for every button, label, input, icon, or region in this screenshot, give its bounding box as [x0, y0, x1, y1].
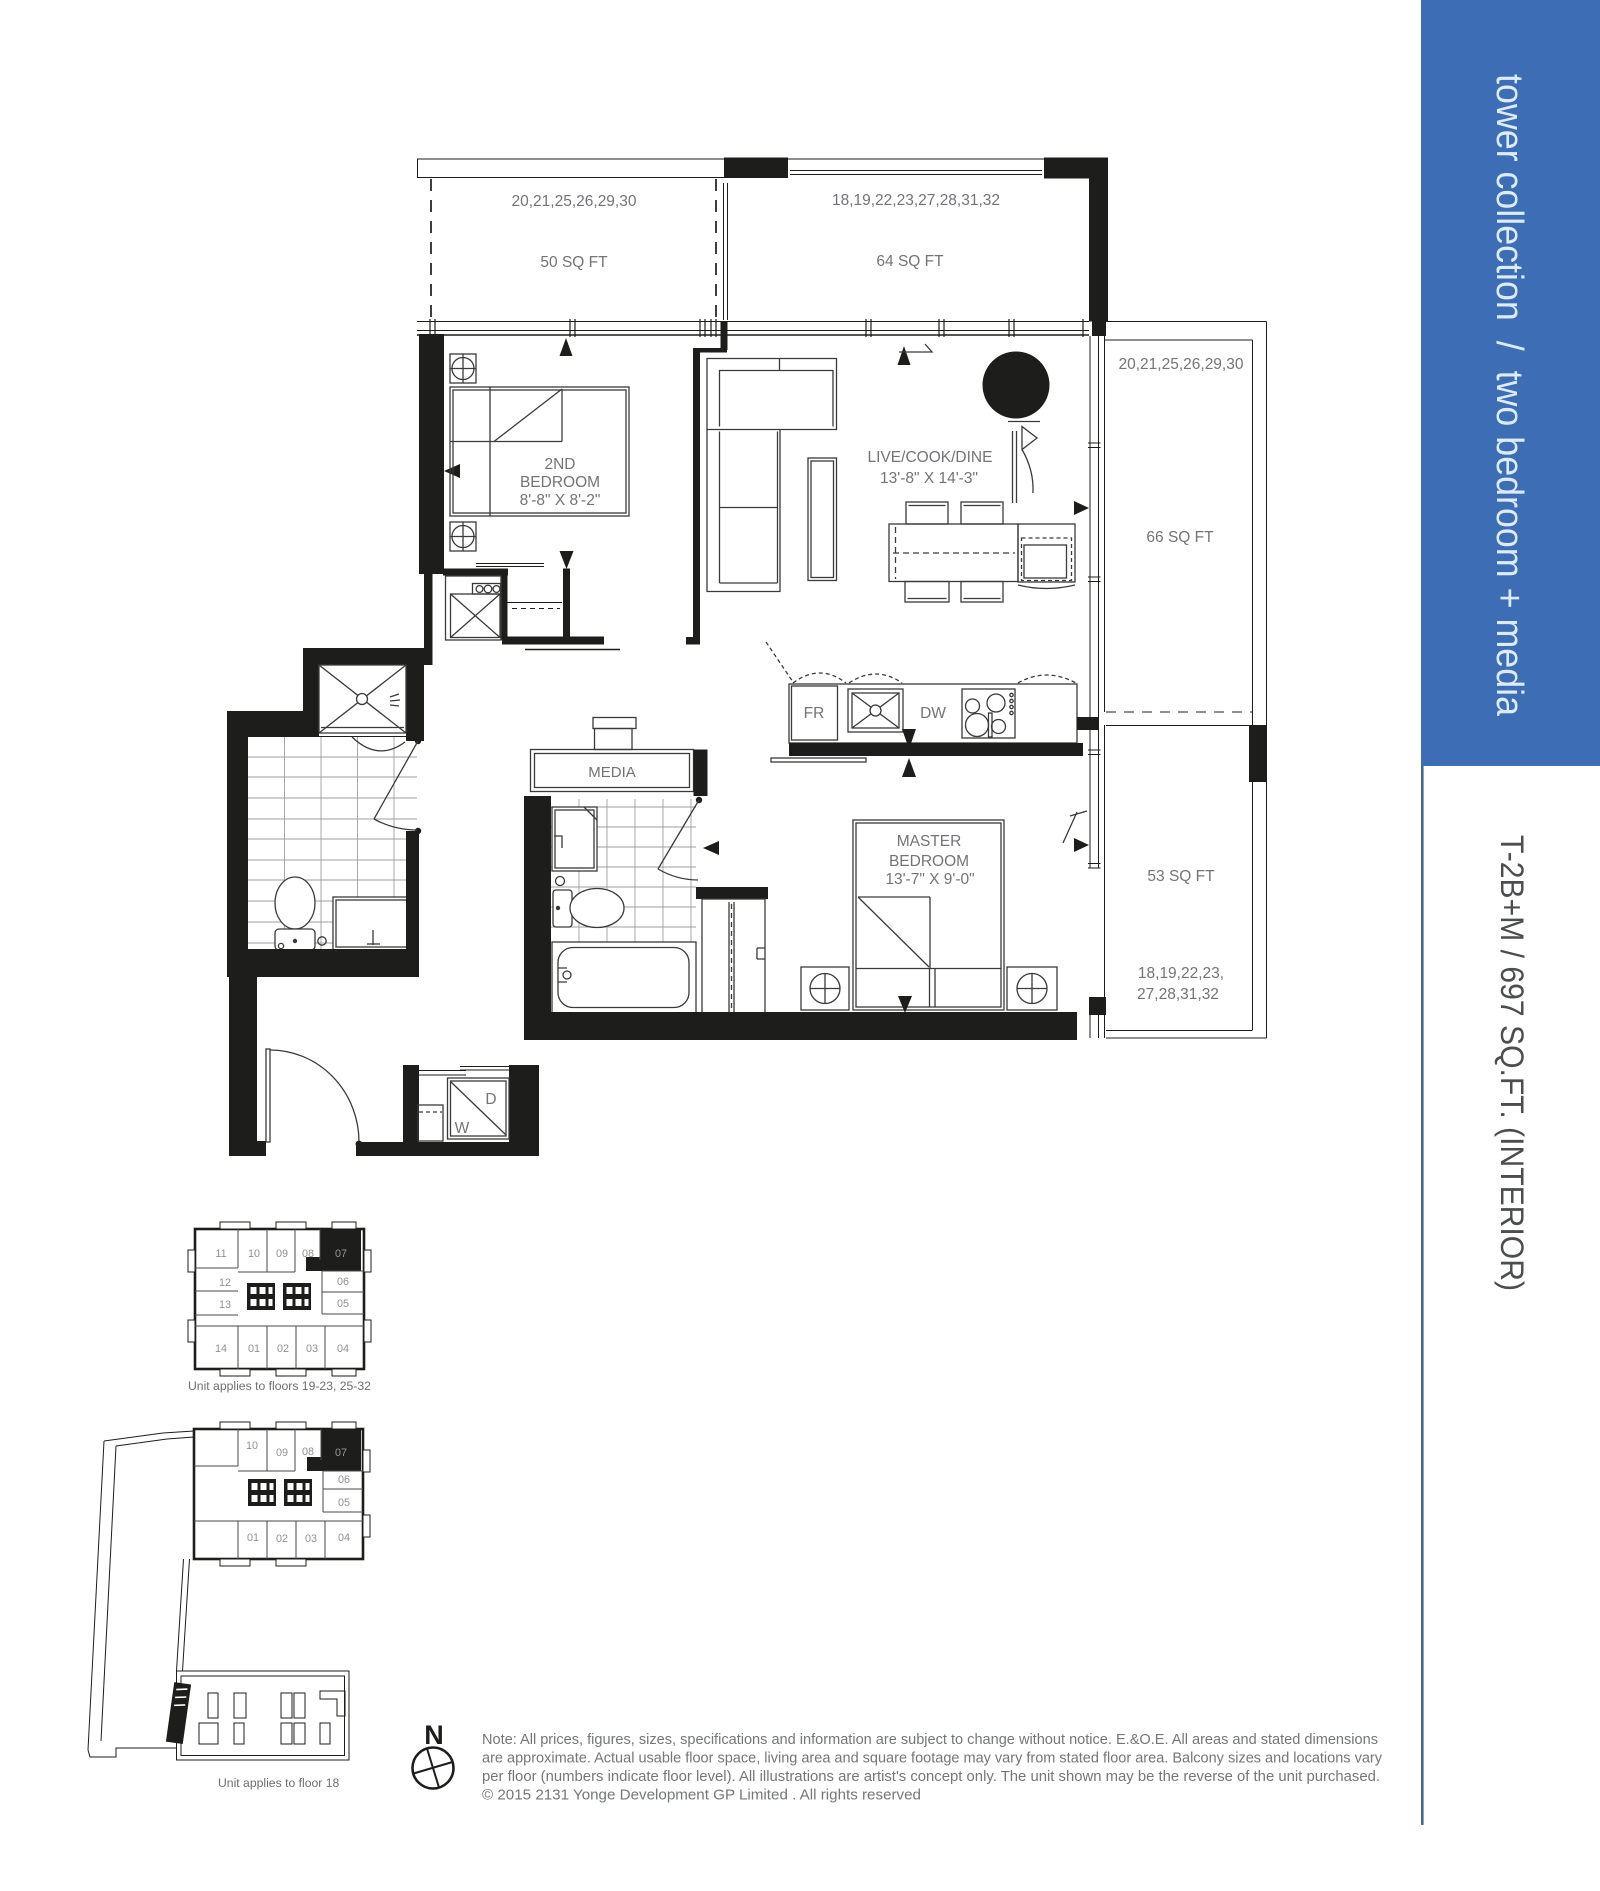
svg-text:09: 09 — [276, 1248, 288, 1260]
svg-text:06: 06 — [338, 1474, 350, 1486]
svg-text:03: 03 — [306, 1343, 318, 1355]
svg-text:Unit applies to floor 18: Unit applies to floor 18 — [218, 1776, 339, 1790]
svg-text:02: 02 — [276, 1533, 288, 1545]
svg-text:02: 02 — [277, 1343, 289, 1355]
svg-text:N: N — [424, 1720, 444, 1750]
svg-text:50 SQ FT: 50 SQ FT — [540, 254, 608, 271]
svg-text:MASTER: MASTER — [897, 833, 962, 850]
svg-text:07: 07 — [335, 1248, 347, 1260]
svg-text:18,19,22,23,: 18,19,22,23, — [1138, 965, 1224, 982]
svg-text:MEDIA: MEDIA — [588, 764, 636, 781]
svg-text:W: W — [455, 1120, 470, 1137]
svg-text:8'-8" X 8'-2": 8'-8" X 8'-2" — [520, 492, 601, 509]
svg-text:are approximate. Actual usable: are approximate. Actual usable floor spa… — [482, 1750, 1382, 1767]
svg-text:03: 03 — [305, 1533, 317, 1545]
svg-text:11: 11 — [215, 1248, 226, 1260]
svg-text:2ND: 2ND — [544, 456, 575, 473]
svg-text:01: 01 — [248, 1343, 260, 1355]
svg-text:FR: FR — [804, 705, 825, 722]
svg-text:D: D — [485, 1091, 496, 1108]
svg-text:BEDROOM: BEDROOM — [889, 853, 969, 870]
svg-text:13: 13 — [219, 1299, 231, 1311]
svg-text:BEDROOM: BEDROOM — [520, 474, 600, 491]
svg-text:66 SQ FT: 66 SQ FT — [1146, 529, 1214, 546]
svg-text:09: 09 — [276, 1447, 288, 1459]
svg-text:01: 01 — [247, 1532, 259, 1544]
svg-text:LIVE/COOK/DINE: LIVE/COOK/DINE — [868, 449, 993, 466]
svg-text:27,28,31,32: 27,28,31,32 — [1137, 986, 1219, 1003]
svg-text:18,19,22,23,27,28,31,32: 18,19,22,23,27,28,31,32 — [832, 192, 1000, 209]
svg-text:04: 04 — [337, 1343, 349, 1355]
svg-text:DW: DW — [920, 705, 946, 722]
svg-text:20,21,25,26,29,30: 20,21,25,26,29,30 — [1119, 356, 1244, 373]
svg-text:10: 10 — [248, 1248, 260, 1260]
svg-text:13'-7" X 9'-0": 13'-7" X 9'-0" — [885, 871, 974, 888]
svg-text:07: 07 — [335, 1447, 347, 1459]
svg-text:per floor (numbers indicate fl: per floor (numbers indicate floor level)… — [482, 1768, 1380, 1785]
svg-text:Note: All prices, figures, siz: Note: All prices, figures, sizes, specif… — [482, 1731, 1378, 1748]
svg-text:20,21,25,26,29,30: 20,21,25,26,29,30 — [512, 193, 637, 210]
svg-text:08: 08 — [302, 1248, 314, 1260]
svg-text:05: 05 — [337, 1298, 349, 1310]
svg-text:T-2B+M / 697 SQ.FT. (INTERIOR): T-2B+M / 697 SQ.FT. (INTERIOR) — [1494, 835, 1530, 1291]
svg-text:13'-8" X 14'-3": 13'-8" X 14'-3" — [880, 470, 978, 487]
svg-text:05: 05 — [338, 1497, 350, 1509]
svg-text:04: 04 — [338, 1532, 350, 1544]
svg-text:12: 12 — [219, 1277, 231, 1289]
svg-text:10: 10 — [246, 1440, 258, 1452]
svg-text:06: 06 — [337, 1276, 349, 1288]
svg-text:08: 08 — [302, 1446, 314, 1458]
svg-text:14: 14 — [215, 1343, 227, 1355]
svg-text:© 2015 2131 Yonge Development: © 2015 2131 Yonge Development GP Limited… — [482, 1787, 921, 1804]
svg-text:53 SQ FT: 53 SQ FT — [1147, 868, 1215, 885]
svg-text:64 SQ FT: 64 SQ FT — [876, 253, 944, 270]
svg-text:tower collection / two bedro: tower collection / two bedroom + media — [1488, 74, 1530, 717]
svg-text:Unit applies to floors 19-23,: Unit applies to floors 19-23, 25-32 — [188, 1379, 371, 1393]
